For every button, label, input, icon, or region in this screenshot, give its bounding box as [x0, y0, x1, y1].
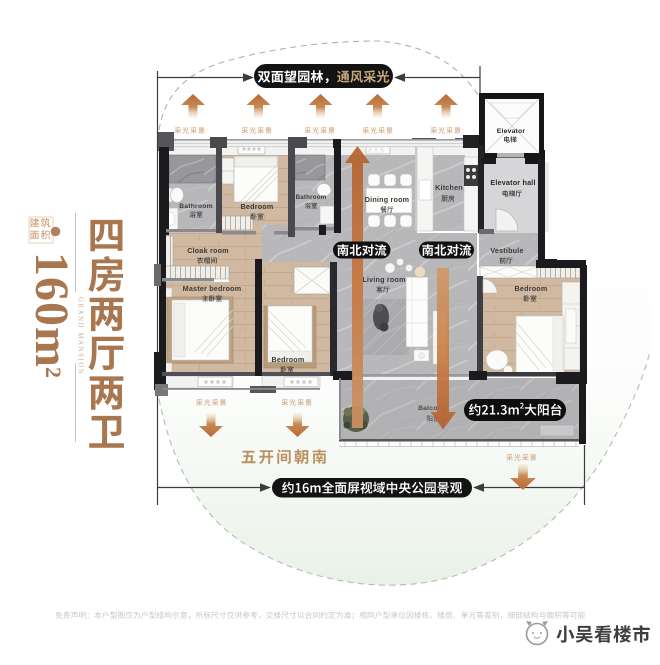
svg-text:Vestibule: Vestibule [490, 246, 523, 255]
svg-text:Bedroom: Bedroom [515, 284, 548, 293]
svg-text:Bathroom: Bathroom [296, 194, 327, 201]
svg-text:Cloak room: Cloak room [187, 246, 229, 255]
svg-text:160m: 160m [25, 252, 78, 368]
svg-text:Living room: Living room [362, 275, 405, 284]
svg-text:GRAND MANSION: GRAND MANSION [77, 297, 84, 375]
svg-text:Kitchen: Kitchen [435, 183, 463, 192]
svg-text:Master bedroom: Master bedroom [183, 284, 242, 293]
svg-text:Bedroom: Bedroom [241, 202, 274, 211]
svg-text:Dining room: Dining room [365, 195, 410, 204]
svg-text:Elevator hall: Elevator hall [490, 178, 535, 187]
svg-text:Bedroom: Bedroom [272, 355, 305, 364]
svg-text:2: 2 [41, 367, 66, 378]
svg-text:Bathroom: Bathroom [179, 203, 213, 210]
svg-text:Elevator: Elevator [497, 128, 526, 135]
